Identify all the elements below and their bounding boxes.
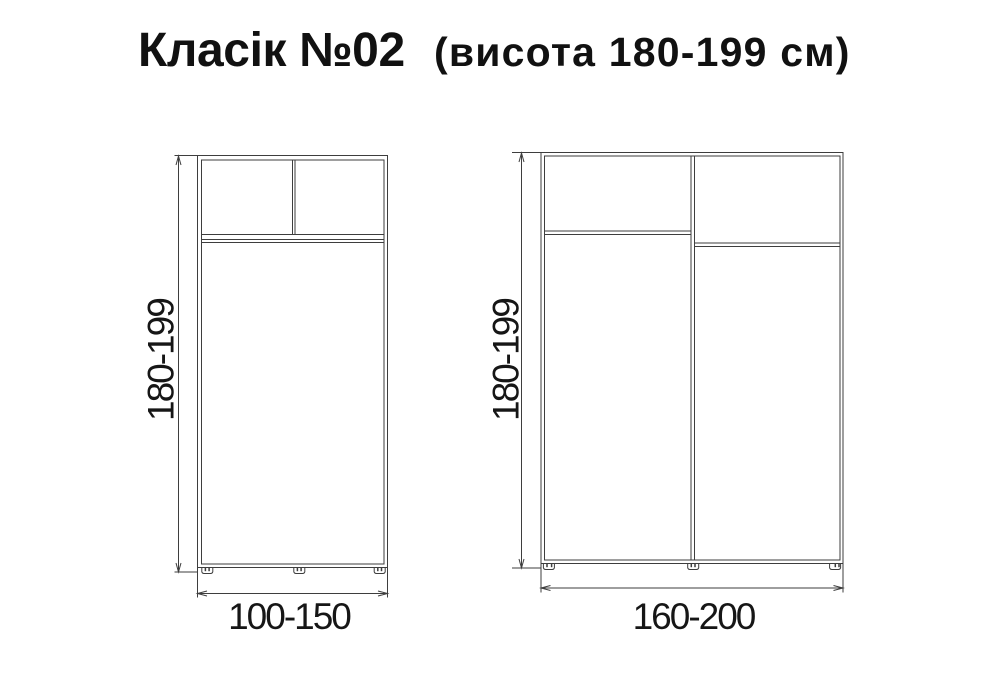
svg-text:(висота 180-199 см): (висота 180-199 см) bbox=[434, 29, 851, 75]
svg-text:160-200: 160-200 bbox=[633, 596, 756, 637]
svg-text:Класік №02: Класік №02 bbox=[138, 24, 405, 77]
svg-text:180-199: 180-199 bbox=[486, 299, 527, 421]
svg-text:180-199: 180-199 bbox=[141, 299, 182, 421]
svg-text:100-150: 100-150 bbox=[228, 596, 351, 637]
